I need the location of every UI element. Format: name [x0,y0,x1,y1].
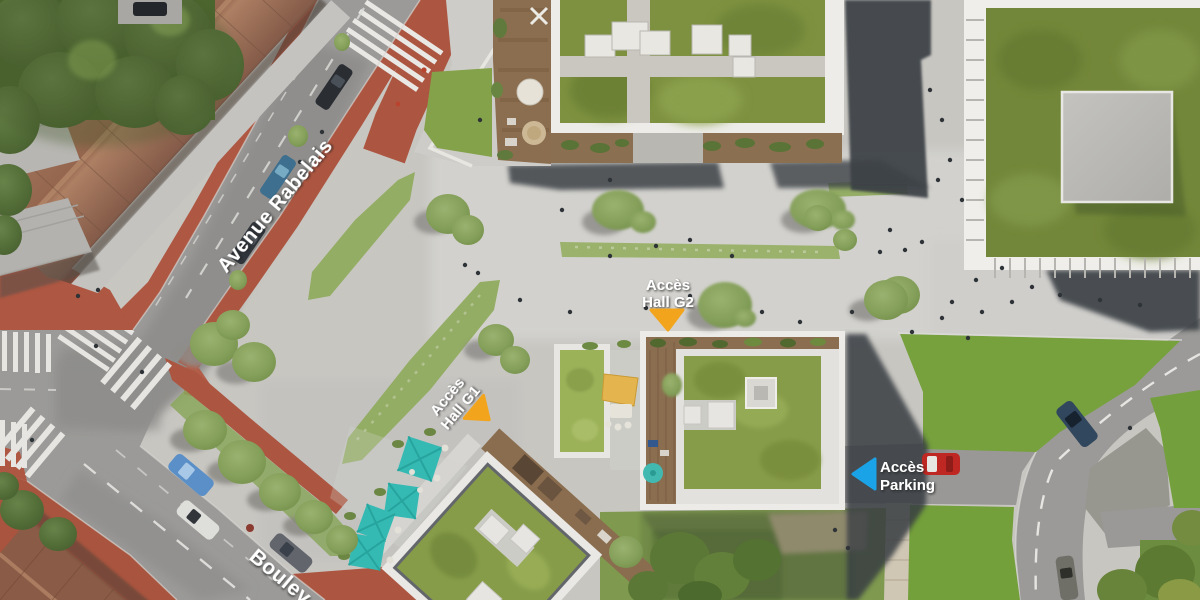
svg-text:Accès: Accès [646,277,690,294]
svg-text:Parking: Parking [880,477,935,494]
svg-text:Accès: Accès [880,459,924,476]
svg-text:Hall G2: Hall G2 [642,294,694,311]
